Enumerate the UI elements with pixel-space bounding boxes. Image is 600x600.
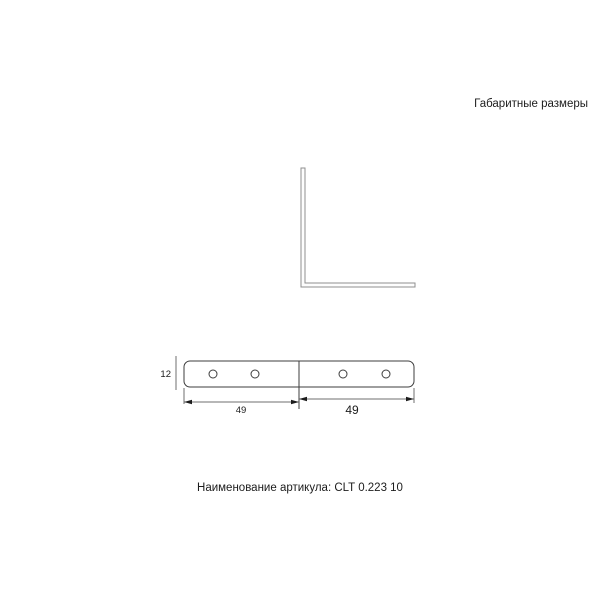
technical-drawing: 12 49 49 <box>0 0 600 600</box>
side-view <box>301 168 415 287</box>
width-left-dimension-label: 49 <box>236 405 247 416</box>
side-view-outline <box>301 168 415 287</box>
article-name: Наименование артикула: CLT 0.223 10 <box>0 482 600 495</box>
arrow-right-dim-left <box>299 397 307 402</box>
hole-4 <box>382 370 390 378</box>
arrow-left-dim-right <box>291 400 299 405</box>
hole-2 <box>251 370 259 378</box>
hole-1 <box>209 370 217 378</box>
arrow-right-dim-right <box>406 397 414 402</box>
width-right-dimension-label: 49 <box>345 403 359 417</box>
hole-3 <box>339 370 347 378</box>
arrow-left-dim-left <box>184 400 192 405</box>
drawing-canvas: Габаритные размеры <box>0 0 600 600</box>
height-dimension-label: 12 <box>160 369 171 380</box>
